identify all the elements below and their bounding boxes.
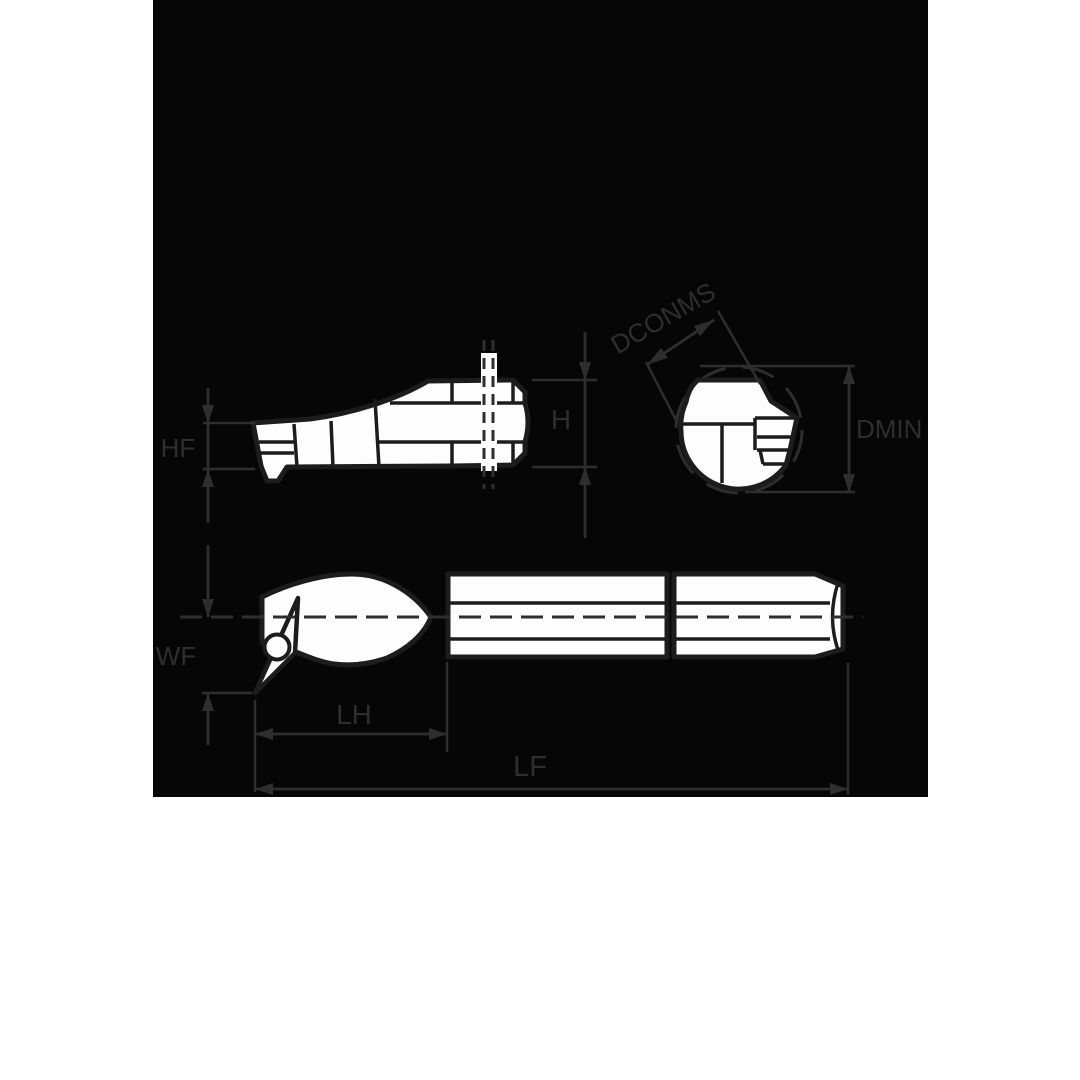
- insert-screw-hole: [265, 635, 290, 660]
- dimension-wf: WF: [156, 545, 252, 745]
- dim-label-hf: HF: [161, 433, 196, 463]
- dimension-hf: HF: [161, 388, 255, 523]
- plan-view: [180, 574, 863, 693]
- tool-diagram: HF H DCONMS: [0, 0, 1080, 1080]
- dim-label-wf: WF: [156, 641, 196, 671]
- dimension-h: H: [532, 332, 597, 538]
- front-view: [676, 367, 802, 493]
- dim-label-h: H: [551, 404, 571, 435]
- hf-extension-lines: [203, 423, 255, 469]
- dim-label-dmin: DMIN: [856, 414, 922, 444]
- screenshot-canvas: HF H DCONMS: [0, 0, 1080, 1080]
- dim-label-dconms: DCONMS: [605, 276, 720, 360]
- front-view-shank: [681, 380, 797, 489]
- dim-label-lh: LH: [336, 699, 372, 730]
- dim-label-lf: LF: [513, 751, 547, 783]
- dimension-lh: LH: [255, 662, 447, 792]
- side-view: [253, 340, 528, 489]
